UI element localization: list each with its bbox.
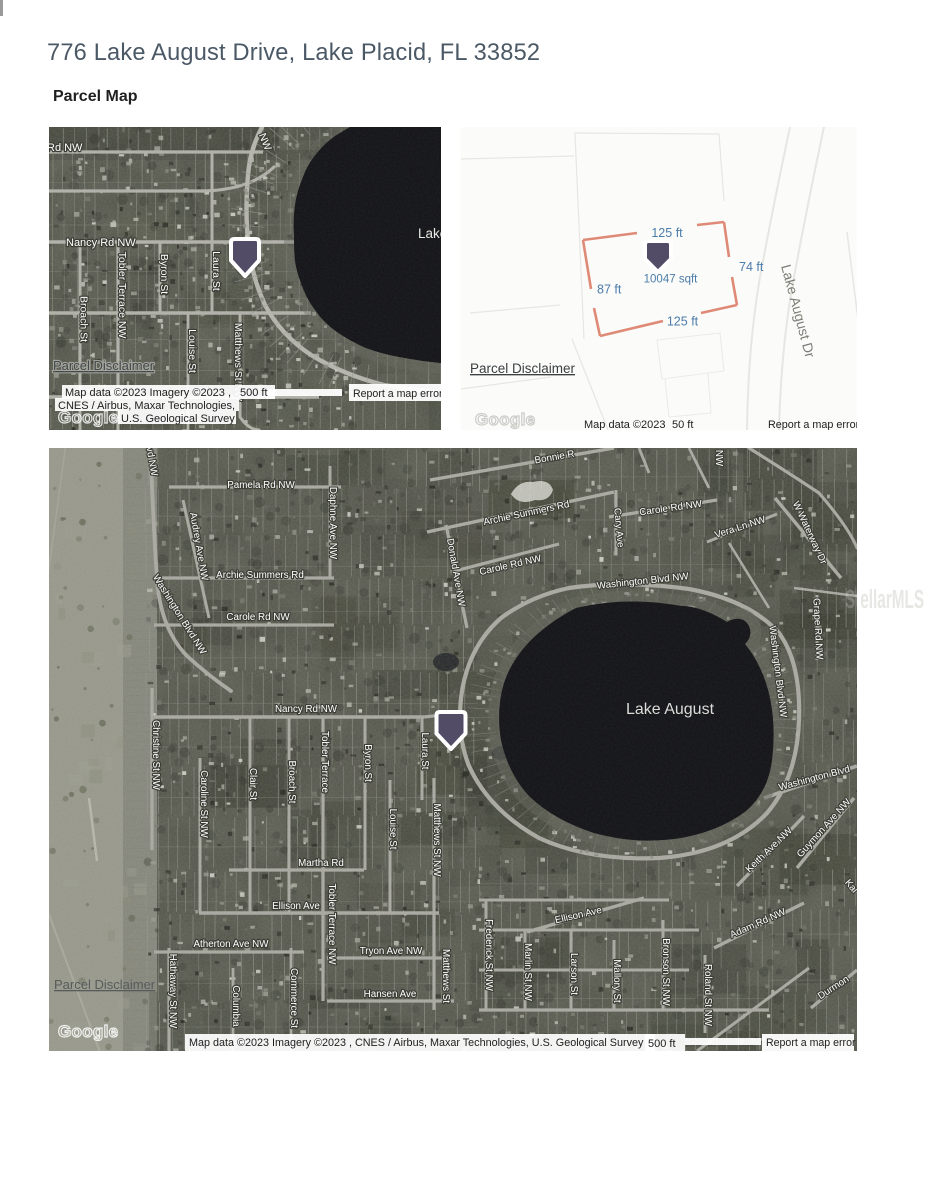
svg-text:Carole Rd NW: Carole Rd NW [226,612,290,623]
svg-text:Broach St: Broach St [78,296,90,342]
svg-text:Laura St: Laura St [419,732,430,769]
svg-text:Hathaway St NW: Hathaway St NW [167,954,178,1029]
svg-text:Google: Google [58,408,118,427]
svg-text:Hansen Ave: Hansen Ave [364,989,417,1000]
svg-text:Marlin St NW: Marlin St NW [522,943,533,1001]
svg-text:125 ft: 125 ft [651,226,683,240]
svg-text:Tobler Terrace NW: Tobler Terrace NW [326,884,337,966]
svg-text:10047 sqft: 10047 sqft [644,274,699,286]
svg-text:500 ft: 500 ft [648,1038,676,1050]
svg-text:50 ft: 50 ft [672,419,693,430]
svg-text:NW: NW [713,450,724,467]
svg-text:U.S. Geological Survey: U.S. Geological Survey [121,413,235,425]
svg-text:Frederick St NW: Frederick St NW [483,919,494,992]
svg-text:Parcel Disclaimer: Parcel Disclaimer [54,977,156,992]
svg-text:Martha Rd: Martha Rd [298,858,344,869]
svg-text:Report a map error: Report a map error [766,1037,856,1049]
svg-text:Byron St: Byron St [362,744,373,782]
svg-text:Clair St: Clair St [247,768,258,800]
svg-text:Report a map error: Report a map error [353,388,441,400]
svg-text:Louise St: Louise St [186,329,198,373]
svg-text:Map data ©2023: Map data ©2023 [584,419,666,430]
svg-text:Ellison Ave: Ellison Ave [272,901,320,912]
svg-text:Map data ©2023 Imagery ©2023 ,: Map data ©2023 Imagery ©2023 , [65,387,231,399]
svg-text:Lake August: Lake August [626,701,715,718]
svg-text:74 ft: 74 ft [739,260,764,274]
svg-text:Parcel Disclaimer: Parcel Disclaimer [53,358,155,373]
svg-text:Nancy Rd NW: Nancy Rd NW [66,237,136,249]
svg-text:Pamela Rd NW: Pamela Rd NW [227,480,295,491]
svg-text:Report a map error: Report a map error [768,419,857,430]
svg-text:Broach St: Broach St [286,760,297,803]
svg-text:500 ft: 500 ft [240,387,268,399]
svg-text:87 ft: 87 ft [597,283,622,297]
svg-text:Rd NW: Rd NW [49,142,83,154]
svg-text:Lake: Lake [418,226,441,241]
svg-text:Louise St: Louise St [387,809,398,850]
svg-text:Map data ©2023 Imagery ©2023 ,: Map data ©2023 Imagery ©2023 , CNES / Ai… [189,1037,644,1049]
svg-text:Tobler Terrace: Tobler Terrace [319,731,330,793]
svg-text:Archie Summers Rd: Archie Summers Rd [216,570,304,581]
svg-text:Tryon Ave NW: Tryon Ave NW [360,946,423,957]
svg-text:Commerce St: Commerce St [288,968,299,1028]
svg-text:Christine St NW: Christine St NW [150,720,161,790]
svg-text:Google: Google [58,1022,118,1041]
svg-text:Nancy Rd NW: Nancy Rd NW [275,704,338,715]
svg-text:Parcel Disclaimer: Parcel Disclaimer [470,361,576,376]
svg-text:Columbia: Columbia [230,985,241,1027]
svg-text:125 ft: 125 ft [667,315,699,329]
svg-text:Roland St NW: Roland St NW [702,964,713,1027]
svg-text:Larson St: Larson St [568,953,579,995]
svg-text:Caroline St NW: Caroline St NW [198,770,209,838]
svg-text:Byron St: Byron St [158,254,170,294]
svg-text:Matthews St NW: Matthews St NW [431,804,442,878]
svg-text:Bronson St NW: Bronson St NW [660,938,671,1006]
svg-text:Tobler Terrace NW: Tobler Terrace NW [116,252,128,339]
svg-text:Daphne Ave NW: Daphne Ave NW [327,487,338,560]
svg-text:Atherton Ave NW: Atherton Ave NW [194,939,270,950]
svg-text:Mallory St: Mallory St [611,959,622,1003]
svg-text:Laura St: Laura St [210,251,222,291]
svg-text:Matthews St: Matthews St [440,949,451,1003]
svg-text:Google: Google [475,410,535,429]
